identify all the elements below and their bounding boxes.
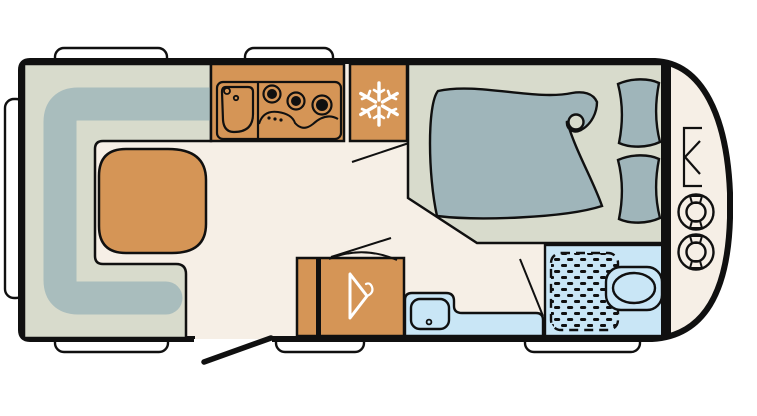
door-opening-floor [195, 331, 271, 340]
bed [408, 64, 668, 243]
duvet-fold-curl [569, 115, 584, 130]
wardrobe-divider [316, 258, 321, 336]
toilet-bowl [613, 273, 655, 303]
lounge-table [99, 149, 206, 253]
entrance-door [194, 331, 272, 362]
pillow-bottom [618, 155, 660, 222]
kitchen-block [211, 64, 344, 141]
floorplan-stage [0, 0, 757, 416]
washroom [545, 245, 663, 336]
duvet [430, 89, 602, 219]
front-bulkhead-wall [661, 62, 671, 338]
pillow-top [618, 79, 660, 146]
fridge [350, 64, 407, 141]
fridge-body [350, 64, 407, 141]
lounge [24, 64, 213, 338]
caravan-floorplan-canvas [0, 0, 757, 416]
